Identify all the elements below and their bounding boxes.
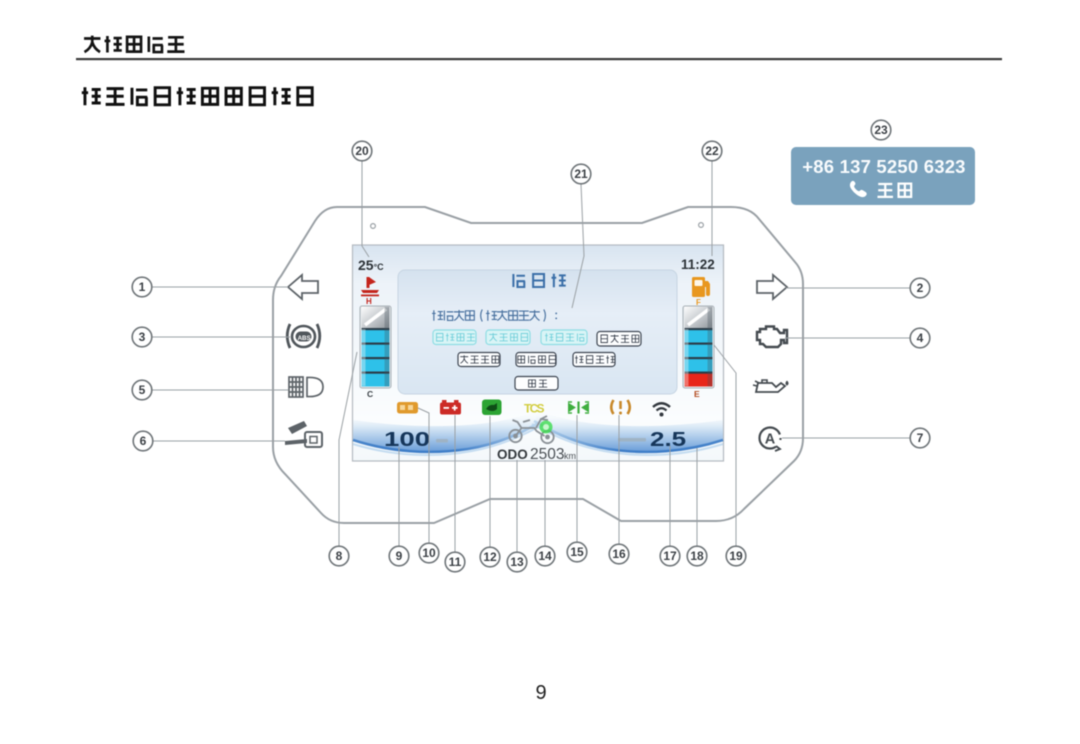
svg-text:20: 20 [355, 144, 369, 158]
svg-text:1: 1 [139, 280, 146, 294]
svg-text:17: 17 [663, 549, 677, 563]
svg-text:100: 100 [384, 429, 430, 451]
svg-text:H: H [366, 297, 372, 306]
svg-text:15: 15 [570, 545, 584, 559]
svg-text:TCS: TCS [524, 402, 545, 416]
svg-text:2: 2 [917, 281, 924, 295]
svg-text:km: km [564, 451, 576, 461]
svg-text:11:22: 11:22 [681, 257, 715, 272]
svg-text:21: 21 [574, 167, 588, 181]
svg-text:10: 10 [422, 546, 436, 560]
svg-text:19: 19 [729, 549, 743, 563]
svg-text:ABS: ABS [298, 335, 311, 342]
svg-text:8: 8 [336, 549, 343, 563]
svg-text:23: 23 [874, 123, 888, 137]
svg-text:3: 3 [139, 330, 146, 344]
svg-text:C: C [367, 389, 373, 399]
svg-text:A: A [765, 432, 776, 448]
svg-text:9: 9 [535, 682, 546, 704]
svg-text:2.5: 2.5 [650, 428, 686, 450]
svg-text:13: 13 [510, 555, 524, 569]
svg-text:ODO: ODO [497, 447, 528, 462]
svg-text:9: 9 [396, 549, 403, 563]
svg-text:22: 22 [705, 144, 719, 158]
svg-text:4: 4 [917, 331, 924, 345]
svg-text:14: 14 [538, 549, 552, 563]
svg-text:18: 18 [690, 549, 704, 563]
svg-text:5: 5 [139, 383, 146, 397]
svg-text:11: 11 [449, 555, 462, 569]
svg-text:16: 16 [612, 547, 626, 561]
svg-text:E: E [694, 389, 700, 399]
svg-text:7: 7 [917, 431, 924, 445]
svg-text:2503: 2503 [530, 446, 564, 463]
svg-text:+86 137 5250 6323: +86 137 5250 6323 [802, 156, 965, 177]
svg-text:12: 12 [483, 550, 497, 564]
svg-text:6: 6 [140, 434, 147, 448]
